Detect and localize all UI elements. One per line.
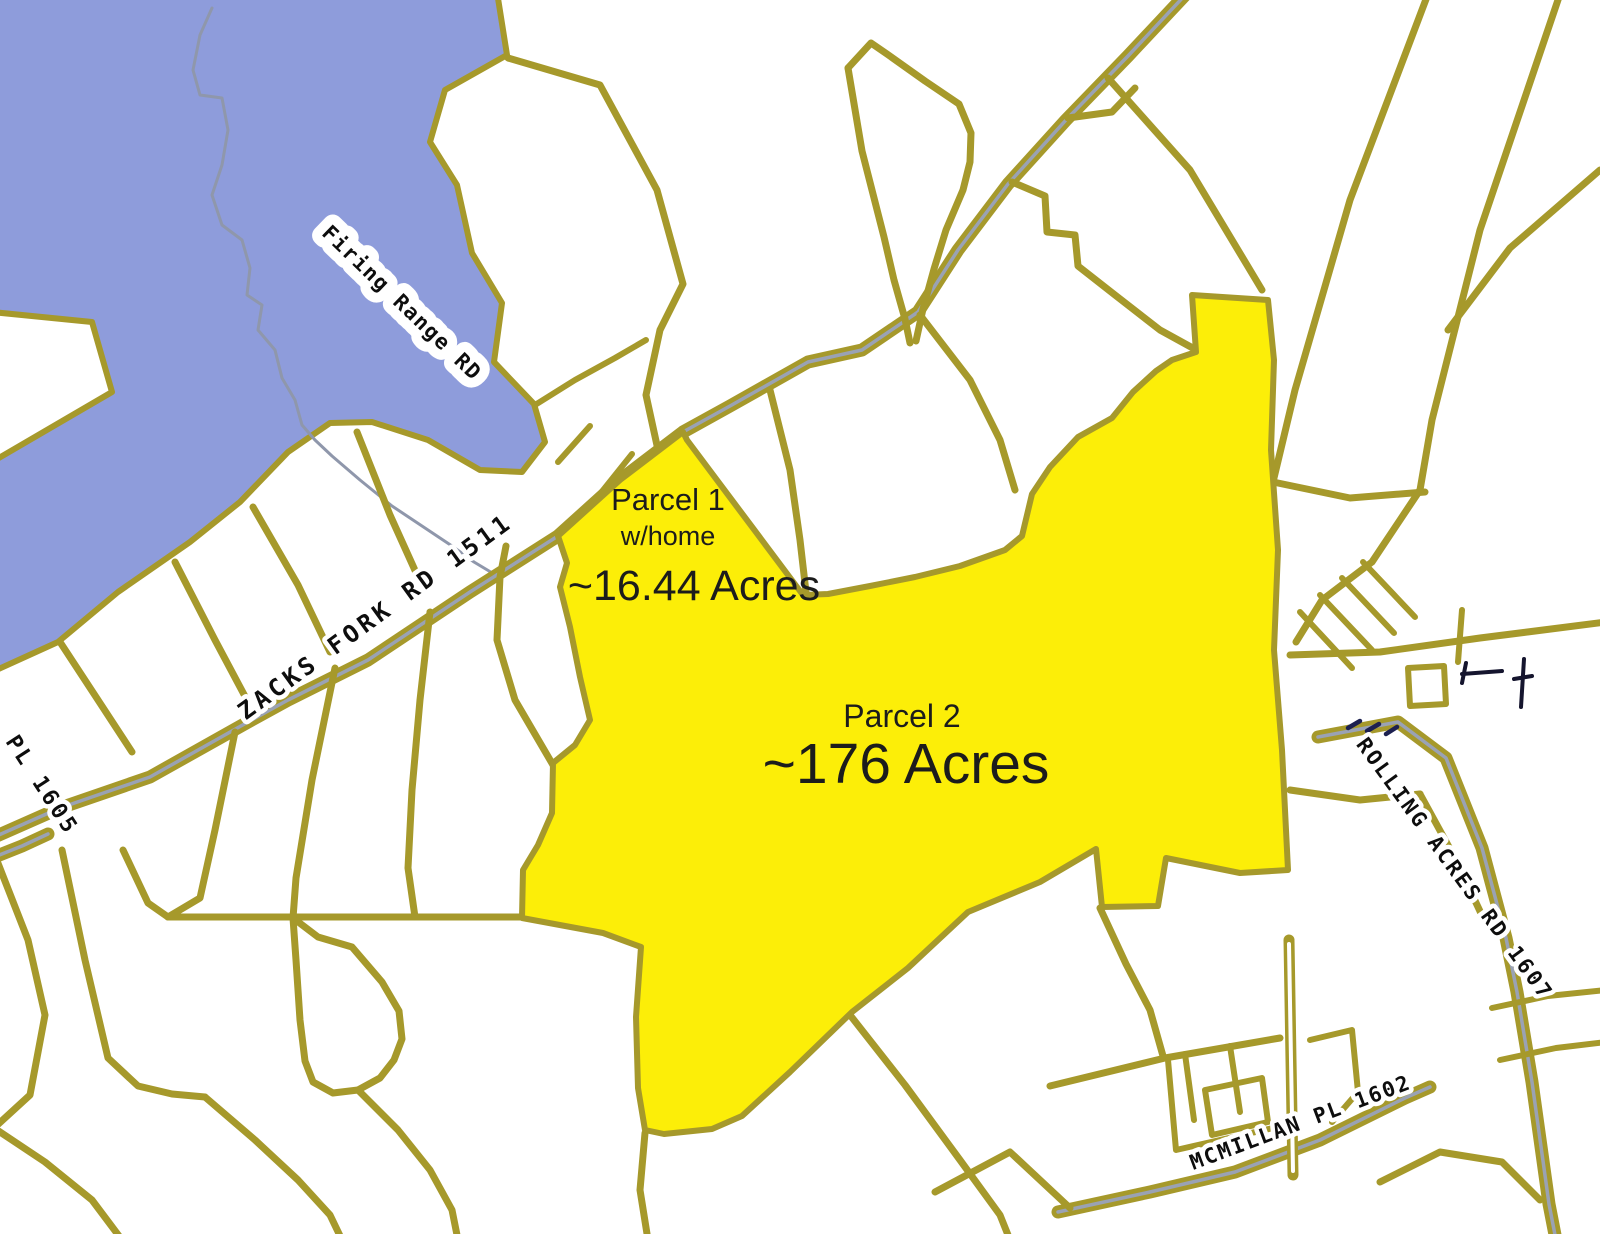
parcel-line <box>1420 0 1560 490</box>
parcel-line <box>1100 908 1163 1056</box>
parcel2-title: Parcel 2 <box>843 698 960 734</box>
parcel-line <box>357 432 418 577</box>
parcel-map: Firing Range RD ZACKS FORK RD 1511 PL 16… <box>0 0 1600 1234</box>
parcel-line <box>1296 490 1420 642</box>
parcel-line <box>205 1097 342 1234</box>
parcel-line <box>920 315 1015 490</box>
parcel-line <box>358 1090 458 1234</box>
parcel-line <box>508 58 683 450</box>
parcel-line <box>1448 170 1600 330</box>
parcel1-acreage: ~16.44 Acres <box>568 562 820 610</box>
map-canvas: Firing Range RD ZACKS FORK RD 1511 PL 16… <box>0 0 1600 1234</box>
parcel2-acreage: ~176 Acres <box>763 732 1050 796</box>
parcel-line <box>0 853 45 1128</box>
parcel1-subtitle: w/home <box>620 521 716 551</box>
parcel-line <box>1380 1152 1540 1200</box>
parcel-line <box>293 668 335 918</box>
parcel-line <box>1185 1054 1194 1120</box>
cross-marker <box>1462 671 1502 674</box>
parcel-line <box>62 850 205 1097</box>
parcel-line <box>1230 1046 1240 1112</box>
parcel-line <box>1050 1058 1165 1086</box>
parcel-line <box>293 918 402 1093</box>
parcel-line <box>935 1152 1070 1208</box>
parcel-line <box>1012 182 1200 352</box>
parcel-line <box>1408 666 1446 706</box>
parcel-line <box>848 68 910 343</box>
parcel-line <box>1273 0 1428 482</box>
road-dead-end-street <box>1289 940 1293 1175</box>
parcel-line <box>850 1015 1010 1234</box>
parcel-line <box>1108 78 1262 290</box>
parcel-line <box>253 507 330 652</box>
cross-marker <box>1514 676 1532 679</box>
parcel-line <box>497 546 553 765</box>
parcel-line <box>1273 482 1425 498</box>
parcel1-title: Parcel 1 <box>611 482 725 517</box>
parcel-line <box>60 642 132 752</box>
parcel-line <box>175 562 248 702</box>
parcel-line <box>0 1128 122 1234</box>
parcel-line <box>535 340 646 405</box>
parcel-line <box>1500 1042 1600 1060</box>
parcel-line <box>123 850 168 917</box>
parcel-boundaries-spike <box>848 43 971 343</box>
parcel-line <box>1458 610 1462 662</box>
parcel-line <box>640 1133 648 1234</box>
parcel-line <box>558 426 590 462</box>
parcel-line <box>848 43 971 341</box>
parcel-line <box>408 612 430 917</box>
cross-marker <box>1462 663 1466 683</box>
cross-marker <box>1521 659 1524 707</box>
